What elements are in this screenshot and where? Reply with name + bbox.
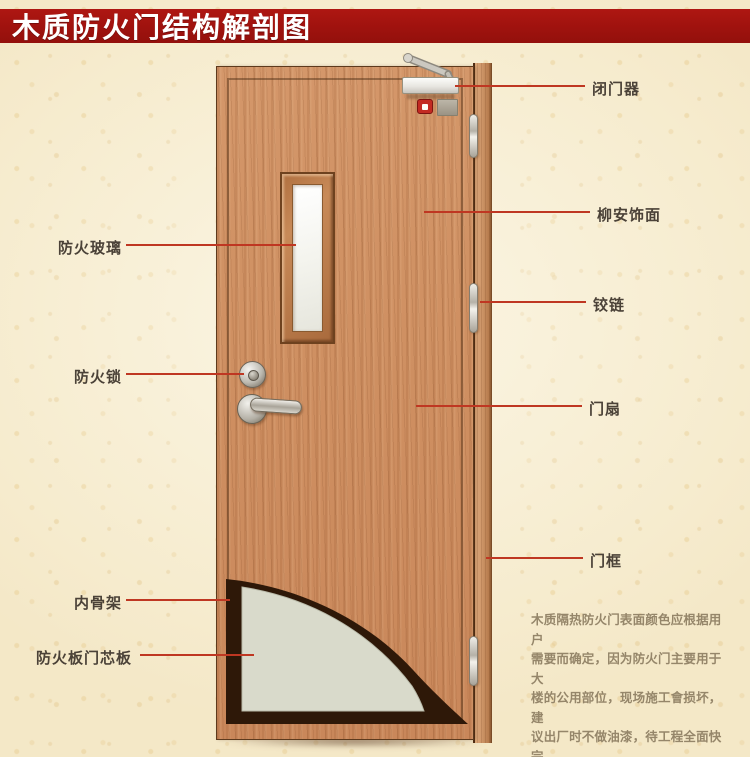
hinge-callout-line [480, 301, 586, 303]
door-leaf-label: 门扇 [589, 398, 621, 419]
alarm-indicator [417, 99, 433, 114]
core-board-label: 防火板门芯板 [36, 647, 132, 668]
title-banner: 木质防火门结构解剖图 [0, 9, 750, 43]
fire-glass-label: 防火玻璃 [58, 237, 122, 258]
door-leaf-callout-line [416, 405, 582, 407]
door-closer-body [402, 77, 459, 94]
veneer-callout-line [424, 211, 590, 213]
inner-frame-callout-line [126, 599, 230, 601]
door-closer-label: 闭门器 [592, 78, 640, 99]
door-frame-callout-line [486, 557, 583, 559]
door-frame-label: 门框 [590, 550, 622, 571]
fire-glass-callout-line [126, 244, 296, 246]
strike-plate [437, 99, 458, 116]
page-title: 木质防火门结构解剖图 [0, 6, 312, 46]
hinge-bottom [469, 636, 478, 686]
hinge-top [469, 114, 478, 158]
description-text: 木质隔热防火门表面颜色应根据用户 需要而确定，因为防火门主要用于大 楼的公用部位… [531, 611, 731, 757]
door-closer-callout-line [455, 85, 585, 87]
veneer-label: 柳安饰面 [597, 204, 661, 225]
fire-lock-callout-line [126, 373, 244, 375]
fire-glass-pane [292, 184, 323, 332]
inner-frame-label: 内骨架 [74, 592, 122, 613]
fire-door-infographic: 木质防火门结构解剖图 防火玻璃 防火锁 [0, 0, 750, 757]
core-board-callout-line [140, 654, 254, 656]
hinge-middle [469, 283, 478, 333]
hinge-label: 铰链 [593, 294, 625, 315]
fire-lock-label: 防火锁 [74, 366, 122, 387]
fire-glass-window-frame [280, 172, 335, 344]
